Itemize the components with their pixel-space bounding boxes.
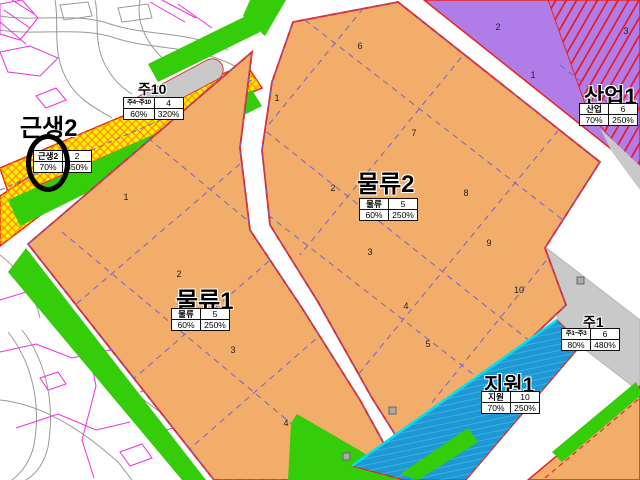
zone-coverage: 60% [172, 320, 201, 331]
zone-num: 6 [591, 329, 620, 340]
parcel-number: 2 [330, 183, 335, 193]
zone-type: 산업 [580, 104, 609, 115]
zone-far: 480% [591, 340, 620, 351]
parcel-number: 2 [495, 22, 500, 32]
zone-type: 주4~주10 [124, 98, 155, 109]
parcel-number: 4 [283, 418, 288, 428]
zone-coverage: 60% [124, 109, 155, 120]
ju1-table: 주1~주3 6 80% 480% [561, 328, 620, 351]
zoning-map: 근생2 주10 물류2 물류1 산업1 지원1 주1 근생2 2 70% 350… [0, 0, 640, 480]
zone-num: 5 [389, 199, 418, 210]
jiwon1-table: 지원 10 70% 250% [481, 391, 540, 414]
zone-coverage: 70% [580, 115, 609, 126]
zone-num: 4 [154, 98, 183, 109]
zone-far: 320% [154, 109, 183, 120]
zone-type: 물류 [172, 309, 201, 320]
zone-label-mullyu2: 물류2 [357, 164, 415, 199]
zone-far: 250% [609, 115, 638, 126]
parcel-number: 7 [411, 128, 416, 138]
mullyu1-table: 물류 5 60% 250% [171, 308, 230, 331]
parcel-number: 1 [274, 93, 279, 103]
zone-type: 물류 [360, 199, 389, 210]
zone-coverage: 70% [482, 403, 511, 414]
zone-num: 10 [511, 392, 540, 403]
zone-far: 250% [201, 320, 230, 331]
parcel-number: 6 [357, 41, 362, 51]
parcel-number: 3 [623, 26, 628, 36]
highlight-ellipse-annotation [26, 134, 70, 192]
zoning-map-canvas [0, 0, 640, 480]
zone-far: 250% [389, 210, 418, 221]
saneop1-table: 산업 6 70% 250% [579, 103, 638, 126]
zone-num: 5 [201, 309, 230, 320]
parcel-number: 4 [403, 301, 408, 311]
zone-coverage: 80% [562, 340, 591, 351]
zone-num: 6 [609, 104, 638, 115]
parcel-number: 8 [463, 188, 468, 198]
parcel-number: 1 [123, 192, 128, 202]
parcel-number: 2 [176, 269, 181, 279]
parcel-number: 9 [486, 238, 491, 248]
ju10-table: 주4~주10 4 60% 320% [123, 97, 184, 120]
parcel-number: 5 [425, 339, 430, 349]
parcel-number: 10 [514, 285, 524, 295]
parcel-number: 3 [367, 247, 372, 257]
zone-label-ju10: 주10 [138, 79, 166, 99]
mullyu2-table: 물류 5 60% 250% [359, 198, 418, 221]
zone-type: 주1~주3 [562, 329, 591, 340]
zone-far: 250% [511, 403, 540, 414]
zone-type: 지원 [482, 392, 511, 403]
parcel-number: 1 [530, 70, 535, 80]
zone-coverage: 60% [360, 210, 389, 221]
parcel-number: 3 [230, 345, 235, 355]
